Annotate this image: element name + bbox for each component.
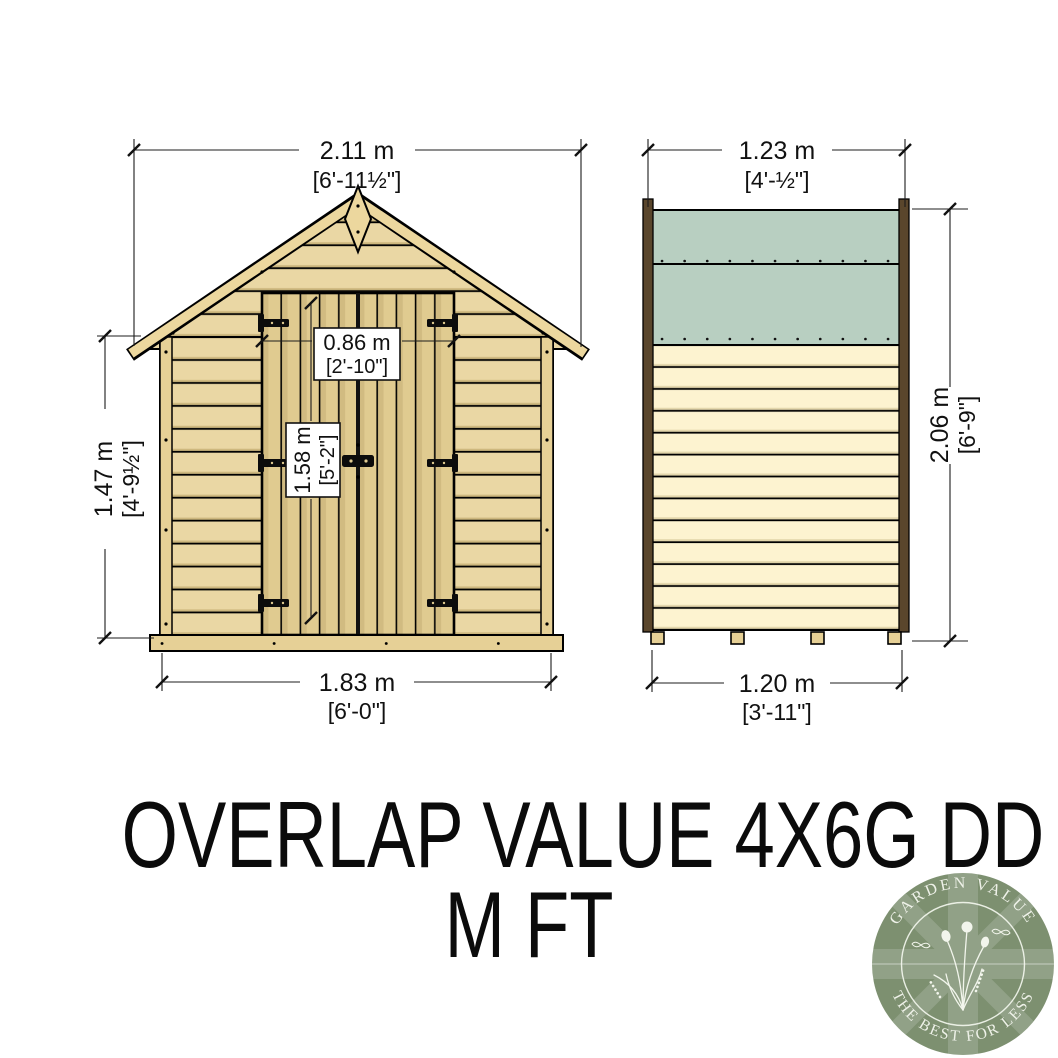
side-base-depth-metric: 1.20 m [739,670,815,698]
front-base-width-imperial: [6'-0"] [328,698,387,724]
side-corner-trim-right [899,199,909,632]
door-width-metric: 0.86 m [323,330,390,355]
side-wall-cladding [652,345,901,630]
product-title-line2: M FT [122,880,937,970]
floor-bearers [651,632,901,644]
door-height-metric: 1.58 m [290,426,315,493]
side-ridge-height-imperial: [6'-9"] [954,396,980,455]
side-elevation: 1.23 m [4'-½"] 2.06 m [6'-9"] 1.20 m [3'… [642,137,980,725]
front-corner-trim-right [541,337,553,635]
garden-value-logo: GARDEN VALUE THE BEST FOR LESS [868,869,1058,1058]
product-title-line1: OVERLAP VALUE 4X6G DD [122,790,937,880]
side-roof-depth-dimension: 1.23 m [4'-½"] [642,137,911,207]
front-roof-width-metric: 2.11 m [320,137,395,165]
roof-felt [652,210,901,345]
side-ridge-height-metric: 2.06 m [926,387,954,463]
door-height-imperial: [5'-2"] [317,435,339,486]
front-eaves-height-metric: 1.47 m [90,441,118,517]
shed-dimension-sheet: 2.11 m [6'-11½"] 1.47 m [4'-9½"] 0.86 m … [0,0,1058,1058]
front-elevation: 2.11 m [6'-11½"] 1.47 m [4'-9½"] 0.86 m … [90,137,587,724]
front-eaves-height-dimension: 1.47 m [4'-9½"] [90,330,154,644]
side-base-depth-dimension: 1.20 m [3'-11"] [646,650,908,725]
side-roof-depth-imperial: [4'-½"] [745,167,810,193]
front-base-width-dimension: 1.83 m [6'-0"] [156,653,557,724]
side-corner-trim-left [643,199,653,632]
front-roof-width-imperial: [6'-11½"] [313,167,402,193]
side-base-depth-imperial: [3'-11"] [742,699,812,725]
front-corner-trim-left [160,337,172,635]
side-roof-depth-metric: 1.23 m [739,137,815,165]
door-width-imperial: [2'-10"] [326,356,388,378]
front-base-width-metric: 1.83 m [319,669,395,697]
floor-base [150,635,563,651]
product-title: OVERLAP VALUE 4X6G DD M FT [122,790,937,970]
side-ridge-height-dimension: 2.06 m [6'-9"] [912,203,980,647]
elevation-drawings: 2.11 m [6'-11½"] 1.47 m [4'-9½"] 0.86 m … [0,0,1058,775]
front-eaves-height-imperial: [4'-9½"] [118,440,144,518]
